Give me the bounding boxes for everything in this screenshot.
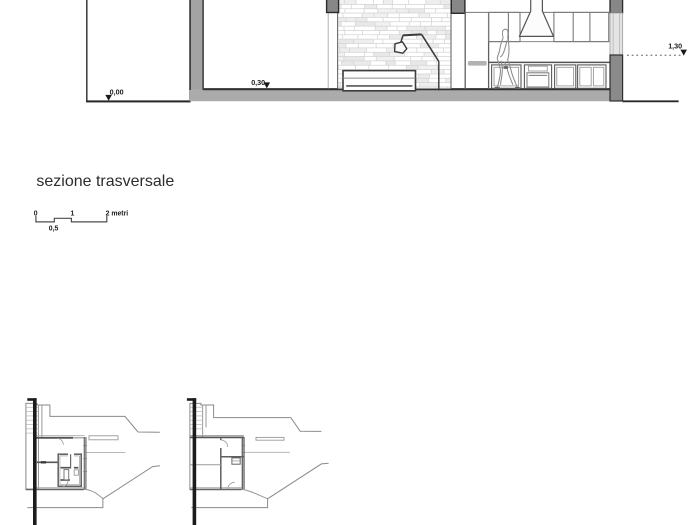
svg-text:2 metri: 2 metri: [106, 211, 129, 218]
svg-text:0,30: 0,30: [251, 78, 265, 87]
svg-text:0,5: 0,5: [49, 226, 59, 233]
svg-text:1,30: 1,30: [668, 41, 682, 50]
svg-text:1: 1: [71, 210, 75, 217]
svg-text:sezione trasversale: sezione trasversale: [36, 173, 174, 190]
svg-text:0,00: 0,00: [110, 87, 124, 96]
